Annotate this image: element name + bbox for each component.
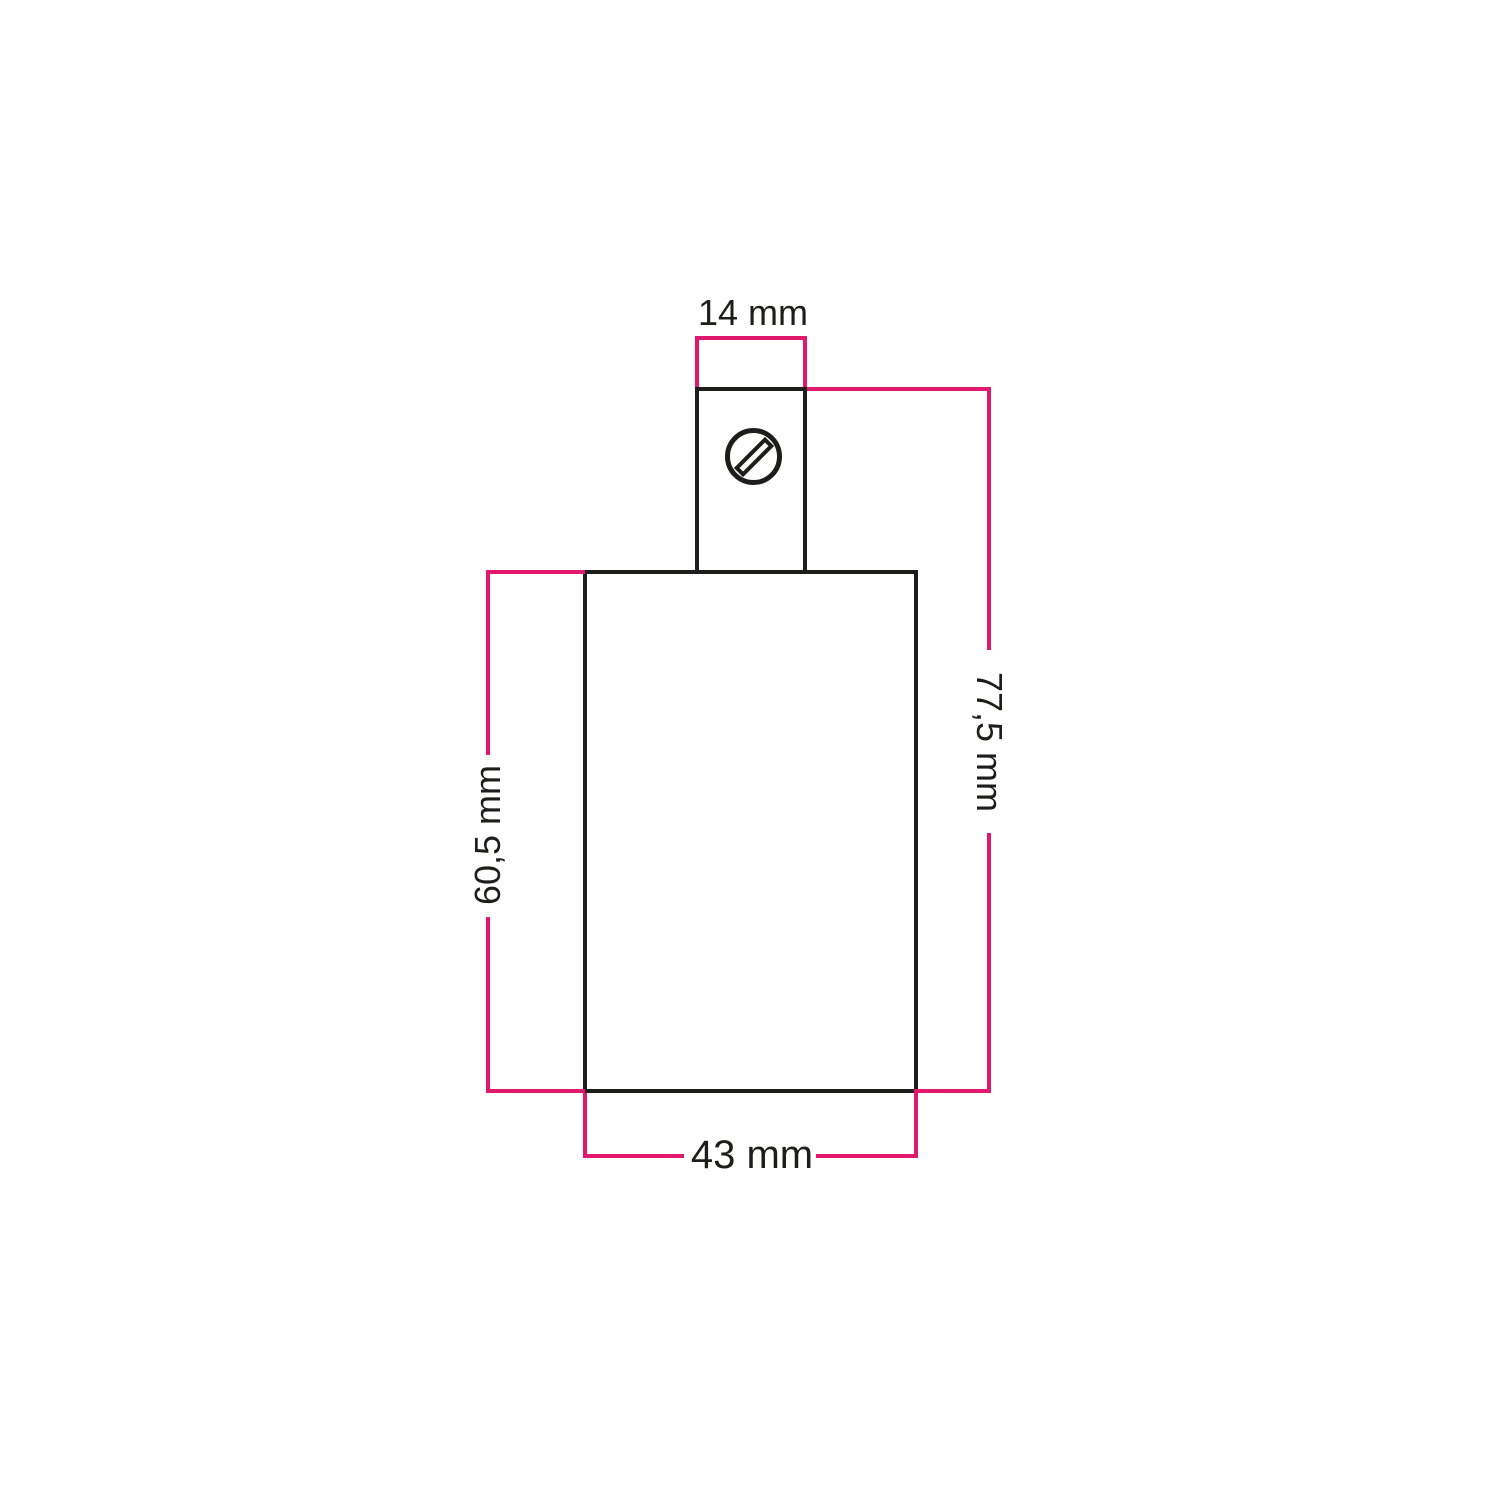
slotted-screw-head-icon xyxy=(725,428,782,485)
dim-line-grip-width-left-tick xyxy=(695,336,699,387)
dimension-diagram: 14 mm 77,5 mm 60,5 mm 43 mm xyxy=(0,0,1500,1500)
dim-line-overall-height-bottom-extension xyxy=(914,1089,991,1093)
dim-line-body-width-right-segment xyxy=(816,1154,918,1158)
screw-slot xyxy=(733,436,773,476)
dim-line-overall-height-upper-segment xyxy=(987,391,991,650)
dim-line-body-height-lower-segment xyxy=(486,917,490,1093)
dim-line-overall-height-top-extension xyxy=(807,387,991,391)
dimension-label-body-width: 43 mm xyxy=(691,1135,813,1175)
lamp-holder-body-outline xyxy=(583,570,918,1093)
dim-line-body-height-top-extension xyxy=(486,570,585,574)
dimension-label-overall-height: 77,5 mm xyxy=(971,672,1007,812)
dim-line-grip-width-horizontal xyxy=(695,336,807,340)
dim-line-body-width-left-segment xyxy=(583,1154,684,1158)
dim-line-body-height-bottom-extension xyxy=(486,1089,585,1093)
dim-line-body-width-right-tick xyxy=(914,1093,918,1158)
dim-line-body-width-left-tick xyxy=(583,1093,587,1158)
dimension-label-grip-width: 14 mm xyxy=(698,295,808,331)
dim-line-body-height-upper-segment xyxy=(486,570,490,755)
dim-line-overall-height-lower-segment xyxy=(987,833,991,1093)
dimension-label-body-height: 60,5 mm xyxy=(470,765,506,905)
dim-line-grip-width-right-tick xyxy=(803,336,807,387)
